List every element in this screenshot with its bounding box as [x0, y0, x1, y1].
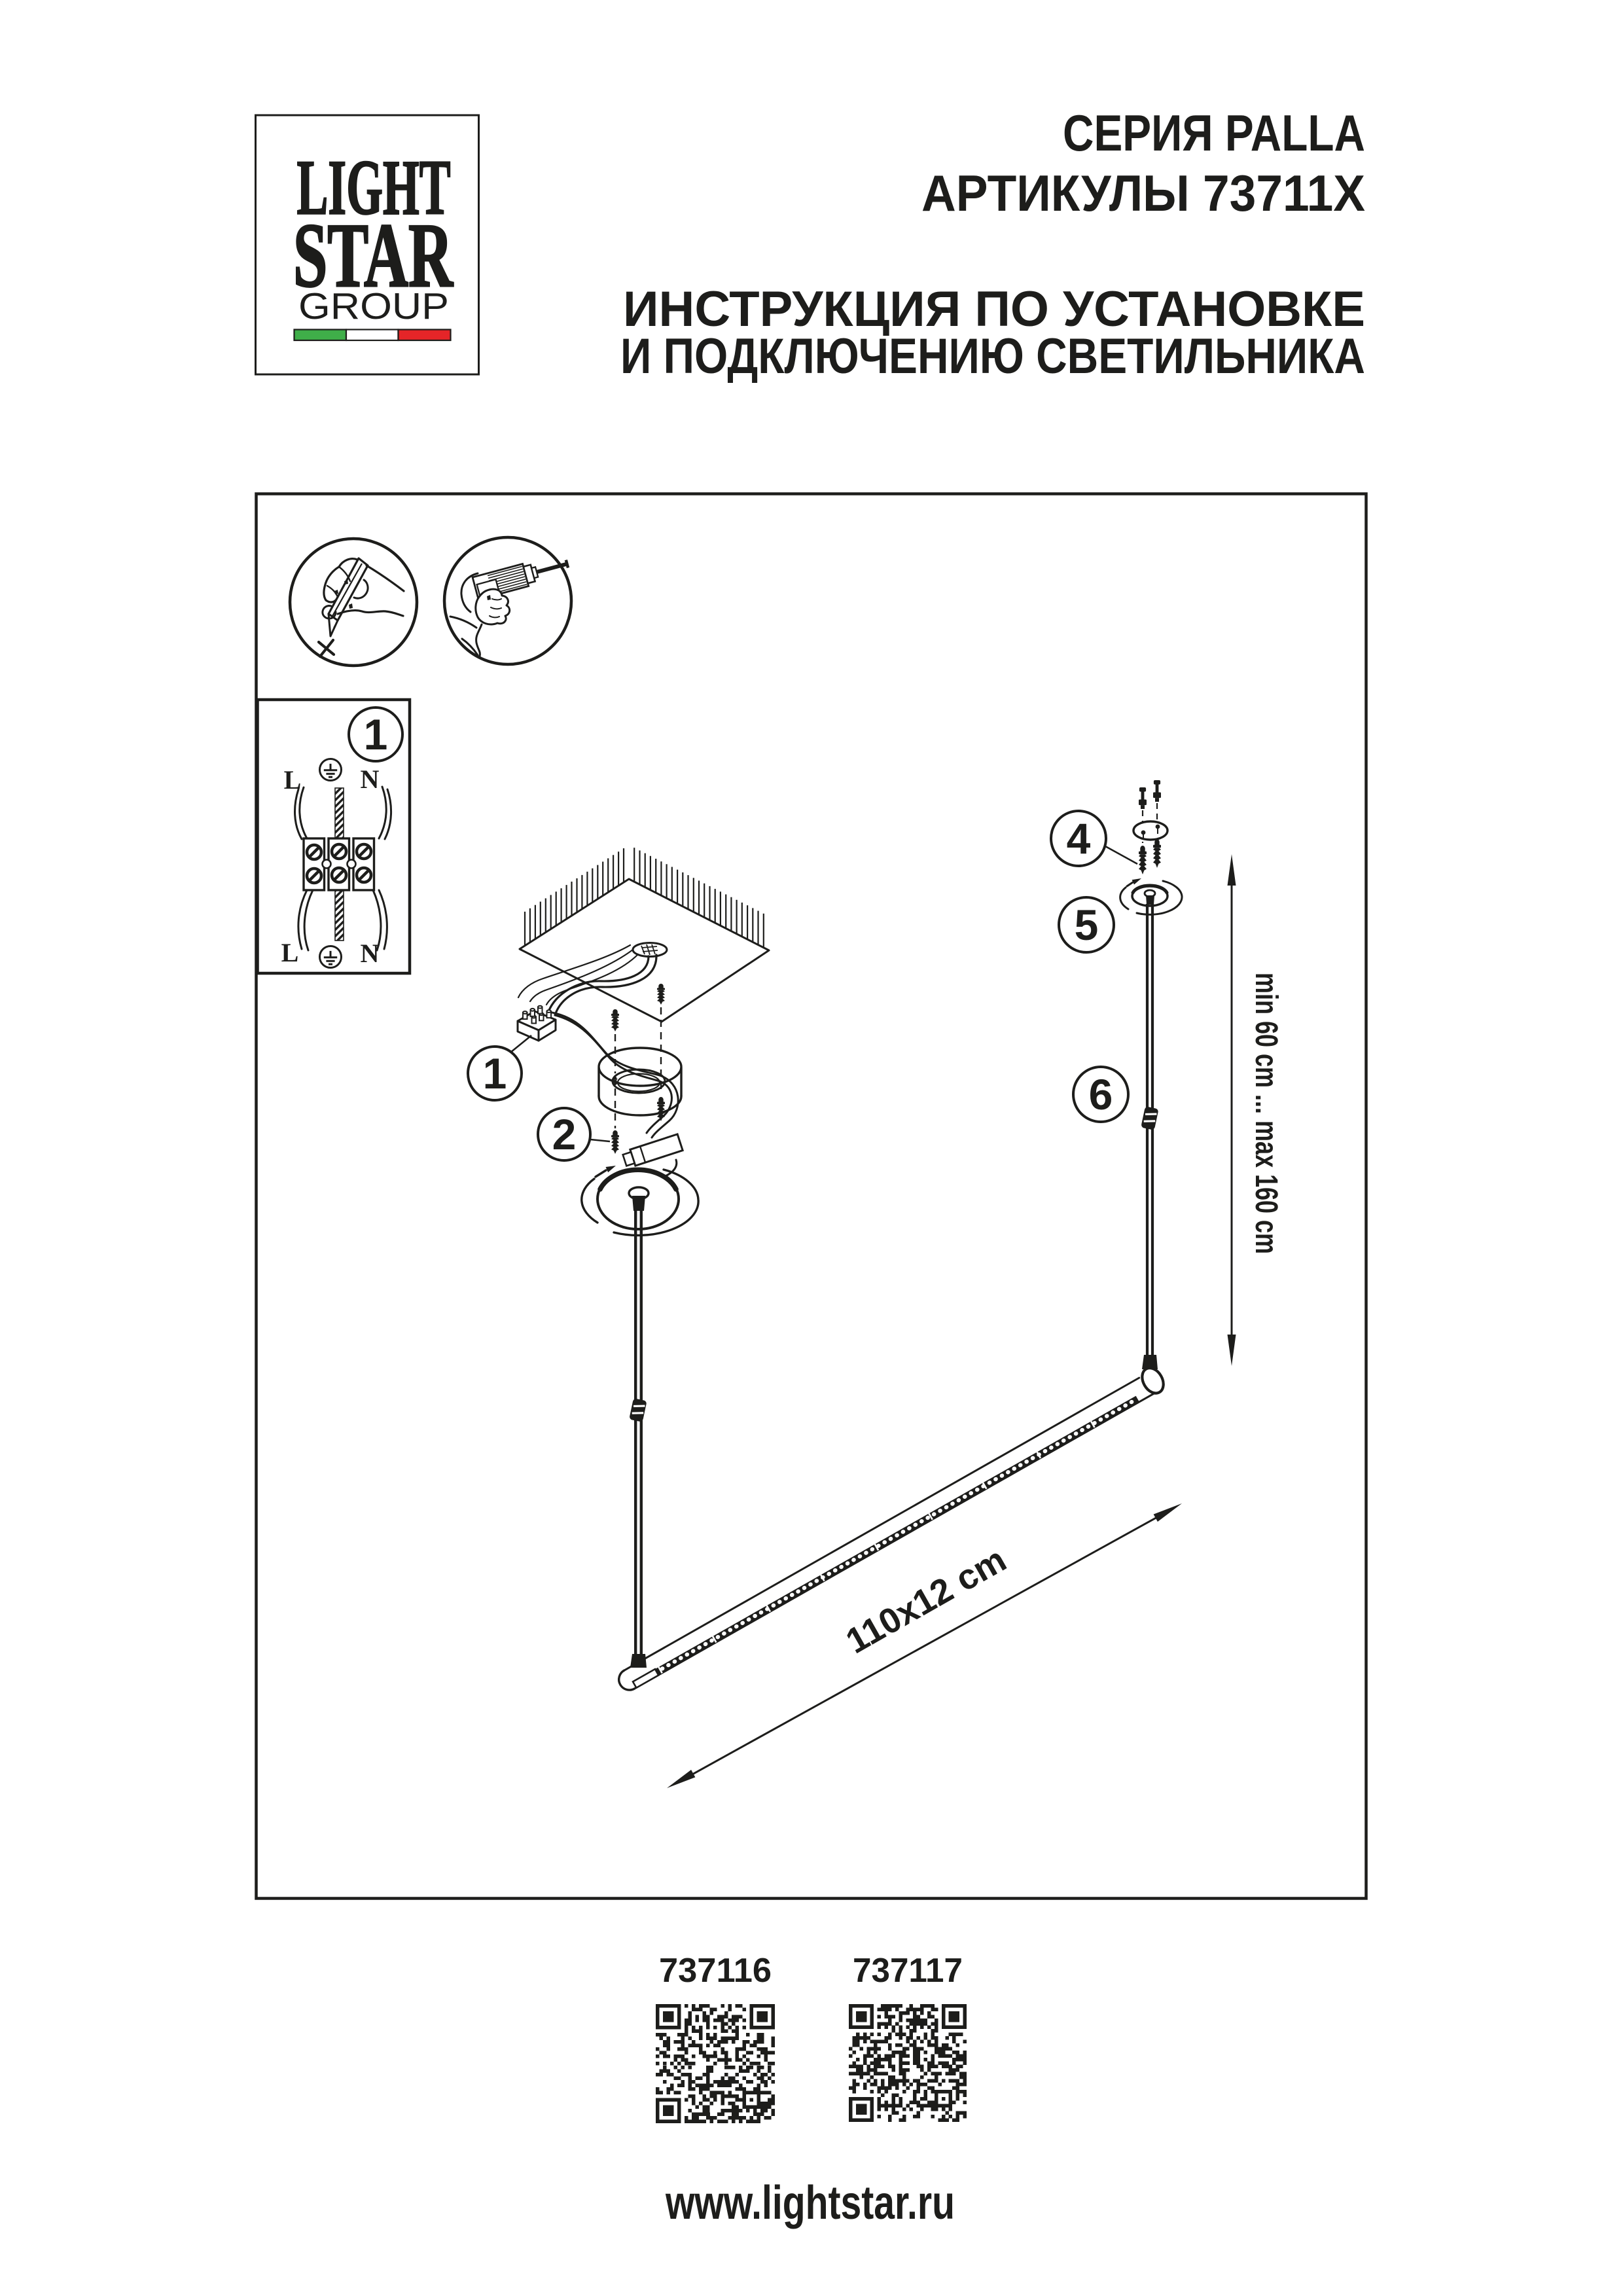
svg-text:N: N [361, 764, 380, 794]
svg-text:6: 6 [1089, 1070, 1113, 1119]
svg-text:СЕРИЯ PALLA: СЕРИЯ PALLA [1063, 104, 1365, 162]
svg-text:L: L [281, 938, 299, 967]
svg-text:N: N [361, 939, 380, 968]
svg-text:737116: 737116 [659, 1952, 772, 1990]
svg-text:737117: 737117 [853, 1952, 963, 1990]
svg-text:4: 4 [1067, 814, 1091, 863]
svg-text:min 60 cm ... max 160 cm: min 60 cm ... max 160 cm [1249, 973, 1283, 1254]
svg-text:И ПОДКЛЮЧЕНИЮ СВЕТИЛЬНИКА: И ПОДКЛЮЧЕНИЮ СВЕТИЛЬНИКА [620, 329, 1365, 384]
svg-text:1: 1 [364, 710, 388, 759]
svg-text:АРТИКУЛЫ 73711X: АРТИКУЛЫ 73711X [921, 164, 1365, 222]
svg-text:5: 5 [1075, 901, 1099, 949]
svg-text:www.lightstar.ru: www.lightstar.ru [665, 2177, 955, 2229]
svg-text:2: 2 [552, 1110, 577, 1158]
svg-text:1: 1 [483, 1049, 507, 1098]
svg-text:GROUP: GROUP [298, 285, 449, 327]
